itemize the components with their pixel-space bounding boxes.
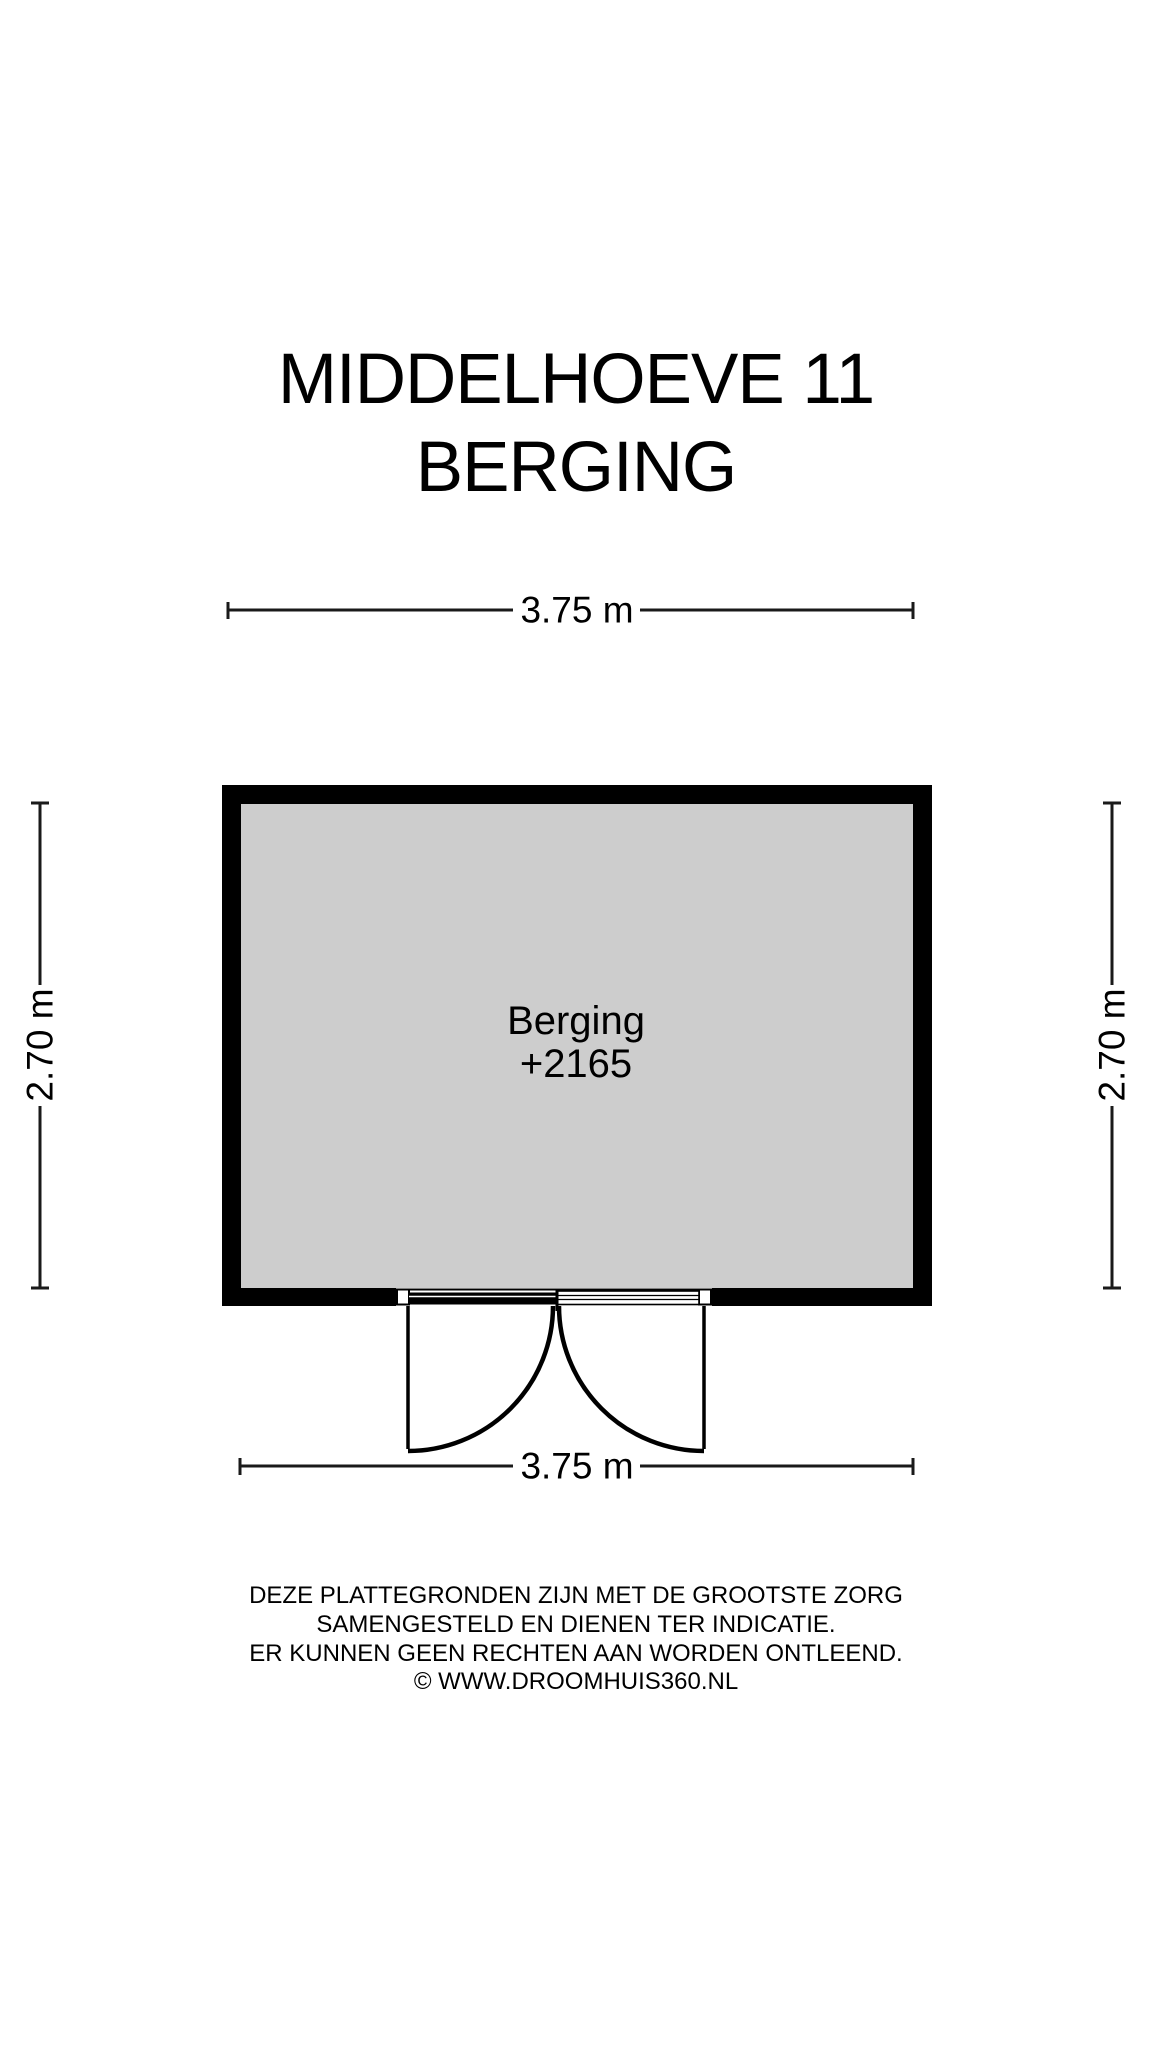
- room-name: Berging: [507, 999, 645, 1043]
- disclaimer-line-3: ER KUNNEN GEEN RECHTEN AAN WORDEN ONTLEE…: [0, 1640, 1152, 1669]
- disclaimer-line-2: SAMENGESTELD EN DIENEN TER INDICATIE.: [0, 1611, 1152, 1640]
- door-panel-left: [409, 1293, 557, 1305]
- floorplan: 3.75 m 2.70 m 2.70 m: [0, 0, 1152, 2048]
- dimension-bottom: 3.75 m: [240, 1446, 913, 1487]
- dimension-label-right: 2.70 m: [1092, 988, 1133, 1101]
- disclaimer-line-1: DEZE PLATTEGRONDEN ZIJN MET DE GROOTSTE …: [0, 1582, 1152, 1611]
- dimension-top: 3.75 m: [228, 590, 913, 631]
- dimension-label-bottom: 3.75 m: [520, 1446, 633, 1487]
- dimension-right: 2.70 m: [1092, 803, 1133, 1288]
- door-panel-right: [557, 1291, 699, 1305]
- double-door: [396, 1288, 712, 1451]
- dimension-left: 2.70 m: [20, 803, 61, 1288]
- room-label: Berging +2165: [507, 999, 645, 1086]
- door-jamb-right: [699, 1290, 711, 1305]
- door-jamb-left: [397, 1290, 409, 1305]
- disclaimer-line-4: © WWW.DROOMHUIS360.NL: [0, 1668, 1152, 1697]
- disclaimer: DEZE PLATTEGRONDEN ZIJN MET DE GROOTSTE …: [0, 1582, 1152, 1697]
- door-swing-arc-left: [408, 1306, 553, 1451]
- door-swing-arc-right: [559, 1306, 704, 1451]
- dimension-label-left: 2.70 m: [20, 988, 61, 1101]
- dimension-label-top: 3.75 m: [520, 590, 633, 631]
- room-elevation: +2165: [520, 1042, 632, 1086]
